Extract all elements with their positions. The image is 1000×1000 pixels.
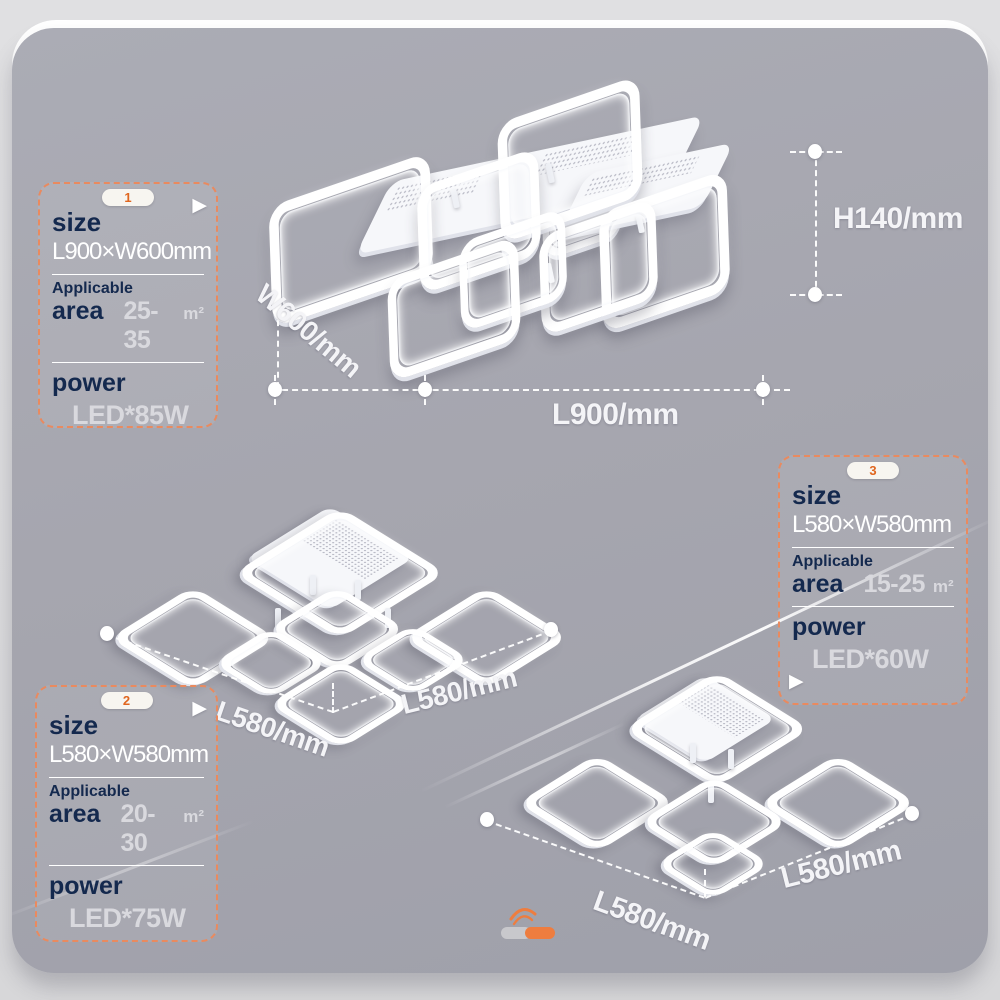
divider xyxy=(792,606,954,607)
badge-number: 3 xyxy=(869,463,876,478)
area-value: 25-35 xyxy=(123,297,175,355)
play-arrow-icon: ▶ xyxy=(192,699,207,718)
play-arrow-icon: ▶ xyxy=(789,672,804,691)
dim-endpoint xyxy=(480,812,494,827)
applicable-label: Applicable xyxy=(49,784,204,801)
dim-label-height: H140/mm xyxy=(833,202,963,236)
brand-mark-icon xyxy=(489,897,559,942)
spec-badge: 3 xyxy=(847,462,899,479)
spec-box-1: 1 ▶ size L900×W600mm Applicable area 25-… xyxy=(38,182,218,428)
divider xyxy=(49,777,204,778)
dim-label-length: L900/mm xyxy=(552,398,679,432)
applicable-label: Applicable xyxy=(52,281,204,298)
area-unit: m² xyxy=(183,807,204,827)
badge-number: 1 xyxy=(124,190,131,205)
play-arrow-icon: ▶ xyxy=(192,196,207,215)
power-value: LED*60W xyxy=(812,644,954,675)
power-label: power xyxy=(49,872,204,901)
size-label: size xyxy=(52,208,204,237)
dim-endpoint xyxy=(808,287,822,302)
area-unit: m² xyxy=(933,577,954,597)
product-card: W600/mm L900/mm H140/mm xyxy=(12,28,988,973)
area-label: area xyxy=(792,571,843,597)
badge-number: 2 xyxy=(123,693,130,708)
size-value: L580×W580mm xyxy=(792,510,954,540)
area-label: area xyxy=(49,801,100,827)
area-value: 20-30 xyxy=(120,800,175,858)
divider xyxy=(49,865,204,866)
spec-badge: 2 xyxy=(101,692,153,709)
dim-tick xyxy=(704,869,706,897)
mounting-post xyxy=(690,743,696,763)
mounting-post xyxy=(310,575,316,595)
divider xyxy=(792,547,954,548)
area-label: area xyxy=(52,298,103,324)
page-background: W600/mm L900/mm H140/mm xyxy=(0,0,1000,1000)
size-label: size xyxy=(792,481,954,510)
dim-endpoint xyxy=(756,382,770,397)
dim-endpoint xyxy=(100,626,114,641)
power-label: power xyxy=(792,613,954,642)
divider xyxy=(52,362,204,363)
size-value: L580×W580mm xyxy=(49,740,204,770)
dim-endpoint xyxy=(808,144,822,159)
size-label: size xyxy=(49,711,204,740)
dim-endpoint xyxy=(544,622,558,637)
dim-endpoint xyxy=(418,382,432,397)
size-value: L900×W600mm xyxy=(52,237,204,267)
dim-tick xyxy=(332,683,334,713)
applicable-label: Applicable xyxy=(792,554,954,571)
spec-badge: 1 xyxy=(102,189,154,206)
spec-box-3: 3 ▶ size L580×W580mm Applicable area 15-… xyxy=(778,455,968,705)
spec-box-2: 2 ▶ size L580×W580mm Applicable area 20-… xyxy=(35,685,218,942)
dim-endpoint xyxy=(905,806,919,821)
dim-line-length xyxy=(272,389,790,391)
area-unit: m² xyxy=(183,304,204,324)
led-ring xyxy=(518,754,676,852)
power-label: power xyxy=(52,369,204,398)
power-value: LED*85W xyxy=(72,400,204,431)
power-value: LED*75W xyxy=(69,903,204,934)
dim-line-height xyxy=(815,150,817,297)
dim-endpoint xyxy=(268,382,282,397)
mounting-post xyxy=(728,749,734,769)
area-value: 15-25 xyxy=(863,570,924,599)
divider xyxy=(52,274,204,275)
